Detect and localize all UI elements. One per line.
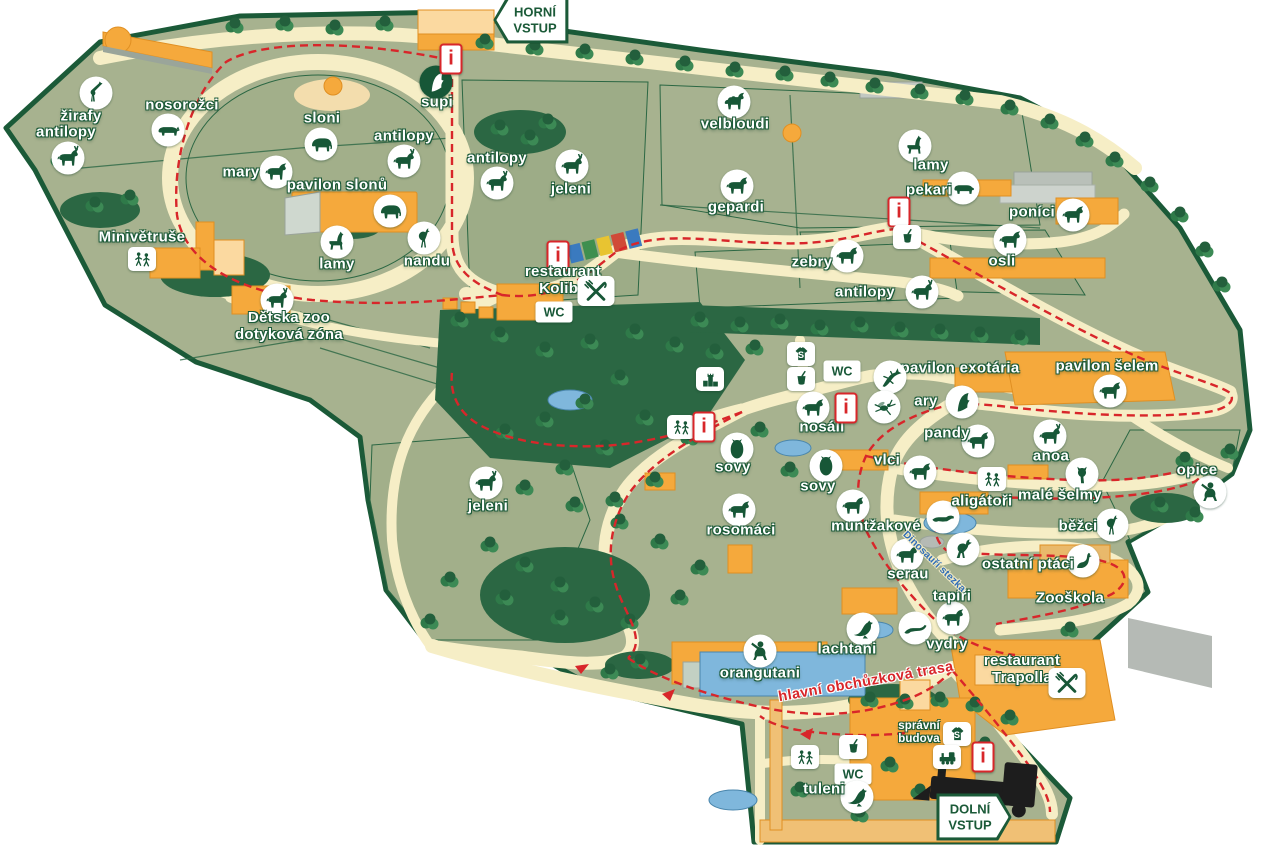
cutlery-trapolla-icon bbox=[1049, 668, 1086, 698]
lachtani-label: lachtani bbox=[817, 642, 876, 659]
ponici-icon bbox=[1057, 199, 1090, 232]
lizard-exotaria-icon bbox=[874, 361, 907, 394]
dolni-vstup-sign: DOLNÍVSTUP bbox=[936, 793, 1011, 840]
trasa-label-label: hlavní obchůzková trasa bbox=[777, 659, 955, 706]
wc-koliba-icon: WC bbox=[536, 302, 573, 323]
jeleni-1-label: jeleni bbox=[551, 182, 591, 199]
jeleni-2-label: jeleni bbox=[468, 499, 508, 516]
playground-center-icon bbox=[667, 415, 695, 439]
dino-icon bbox=[947, 533, 980, 566]
antilopy-4-icon bbox=[906, 276, 939, 309]
antilopy-2-label: antilopy bbox=[374, 129, 434, 146]
rosomaci-label: rosomáci bbox=[706, 523, 775, 540]
pavilon-exotaria-label: pavilon exotária bbox=[900, 361, 1019, 378]
vlci-icon bbox=[904, 456, 937, 489]
gepardi-label: gepardi bbox=[708, 200, 764, 217]
train-icon bbox=[933, 745, 961, 769]
bezci-icon bbox=[1096, 509, 1129, 542]
osli-icon bbox=[994, 224, 1027, 257]
info-nosali-icon: i bbox=[835, 393, 858, 424]
orangutani-label: orangutani bbox=[720, 666, 801, 683]
bezci-label: běžci bbox=[1058, 519, 1097, 536]
pekari-label: pekari bbox=[906, 183, 952, 200]
minivetruse-label: Minivětruše bbox=[99, 230, 186, 247]
tapiri-icon bbox=[937, 602, 970, 635]
pandy-label: pandy bbox=[924, 426, 970, 443]
opice-icon bbox=[1194, 476, 1227, 509]
ary-icon bbox=[946, 386, 979, 419]
info-dolni-icon: i bbox=[972, 742, 995, 773]
sovy-2-label: sovy bbox=[800, 479, 835, 496]
antilopy-4-label: antilopy bbox=[835, 285, 895, 302]
opice-label: opice bbox=[1177, 463, 1218, 480]
zooskola-label: Zooškola bbox=[1036, 591, 1104, 608]
tuleni-label: tuleni bbox=[803, 782, 845, 799]
male-selmy-icon bbox=[1066, 458, 1099, 491]
pavilon-slonu-label: pavilon slonů bbox=[287, 178, 388, 195]
anoa-label: anoa bbox=[1033, 449, 1069, 466]
aligatori-label: aligátoři bbox=[951, 494, 1012, 511]
tower-icon bbox=[696, 367, 724, 391]
supi-label: supi bbox=[421, 95, 453, 112]
cutlery-koliba-icon bbox=[578, 276, 615, 306]
jeleni-1-icon bbox=[556, 150, 589, 183]
lamy-2-label: lamy bbox=[913, 158, 948, 175]
spravni-budova-label: správníbudova bbox=[898, 720, 940, 746]
wc-center-icon: WC bbox=[824, 361, 861, 382]
sloni-icon bbox=[305, 128, 338, 161]
info-center-icon: i bbox=[693, 412, 716, 443]
sovy-1-label: sovy bbox=[715, 460, 750, 477]
cup-dolni-icon bbox=[839, 735, 867, 759]
shop-dolni-icon: S bbox=[943, 722, 971, 746]
serau-label: serau bbox=[887, 567, 929, 584]
cup-pekari-icon bbox=[893, 225, 921, 249]
antilopy-3-icon bbox=[481, 167, 514, 200]
sloni-label: sloni bbox=[304, 111, 341, 128]
nandu-icon bbox=[408, 222, 441, 255]
zebry-icon bbox=[831, 240, 864, 273]
zoo-map: žirafyantilopynosorožcislonimarypavilon … bbox=[0, 0, 1274, 853]
ostatni-ptaci-label: ostatní ptáci bbox=[982, 557, 1074, 574]
velbloudi-label: velbloudi bbox=[701, 117, 770, 134]
zirafy-icon bbox=[80, 77, 113, 110]
detska-zoo-label: Dětska zoodotyková zóna bbox=[235, 310, 343, 344]
zebry-label: zebry bbox=[792, 255, 833, 272]
antilopy-3-label: antilopy bbox=[467, 151, 527, 168]
ponici-label: poníci bbox=[1009, 205, 1055, 222]
vlci-label: vlci bbox=[874, 453, 900, 470]
nosorozci-icon bbox=[152, 114, 185, 147]
osli-label: osli bbox=[988, 254, 1015, 271]
playground-dolni-icon bbox=[791, 745, 819, 769]
antilopy-1-label: antilopy bbox=[36, 125, 96, 142]
tapiri-label: tapíři bbox=[933, 589, 971, 606]
orangutani-icon bbox=[744, 635, 777, 668]
info-pekari-icon: i bbox=[888, 197, 911, 228]
gepardi-icon bbox=[721, 170, 754, 203]
playground-selmy-icon bbox=[978, 467, 1006, 491]
ary-label: ary bbox=[914, 394, 937, 411]
cup-center-icon bbox=[787, 367, 815, 391]
mary-label: mary bbox=[222, 165, 259, 182]
info-horni-icon: i bbox=[440, 44, 463, 75]
pavilon-selem-icon bbox=[1094, 375, 1127, 408]
nandu-label: nandu bbox=[404, 254, 451, 271]
vydry-label: vydry bbox=[926, 637, 968, 654]
nosorozci-label: nosorožci bbox=[145, 98, 219, 115]
antilopy-1-icon bbox=[52, 142, 85, 175]
tuleni-icon bbox=[841, 781, 874, 814]
lamy-1-label: lamy bbox=[319, 257, 354, 274]
velbloudi-icon bbox=[718, 86, 751, 119]
horni-vstup-sign: HORNÍVSTUP bbox=[493, 0, 568, 44]
antilopy-2-icon bbox=[388, 145, 421, 178]
shop-horni-icon: S bbox=[787, 342, 815, 366]
marker-layer: žirafyantilopynosorožcislonimarypavilon … bbox=[0, 0, 1274, 853]
pavilon-slonu-icon bbox=[374, 195, 407, 228]
lamy-1-icon bbox=[321, 226, 354, 259]
insect-icon bbox=[868, 391, 901, 424]
playground-minivetruse-icon bbox=[128, 247, 156, 271]
male-selmy-label: malé šelmy bbox=[1018, 488, 1102, 505]
pavilon-selem-label: pavilon šelem bbox=[1055, 359, 1158, 376]
jeleni-2-icon bbox=[470, 467, 503, 500]
